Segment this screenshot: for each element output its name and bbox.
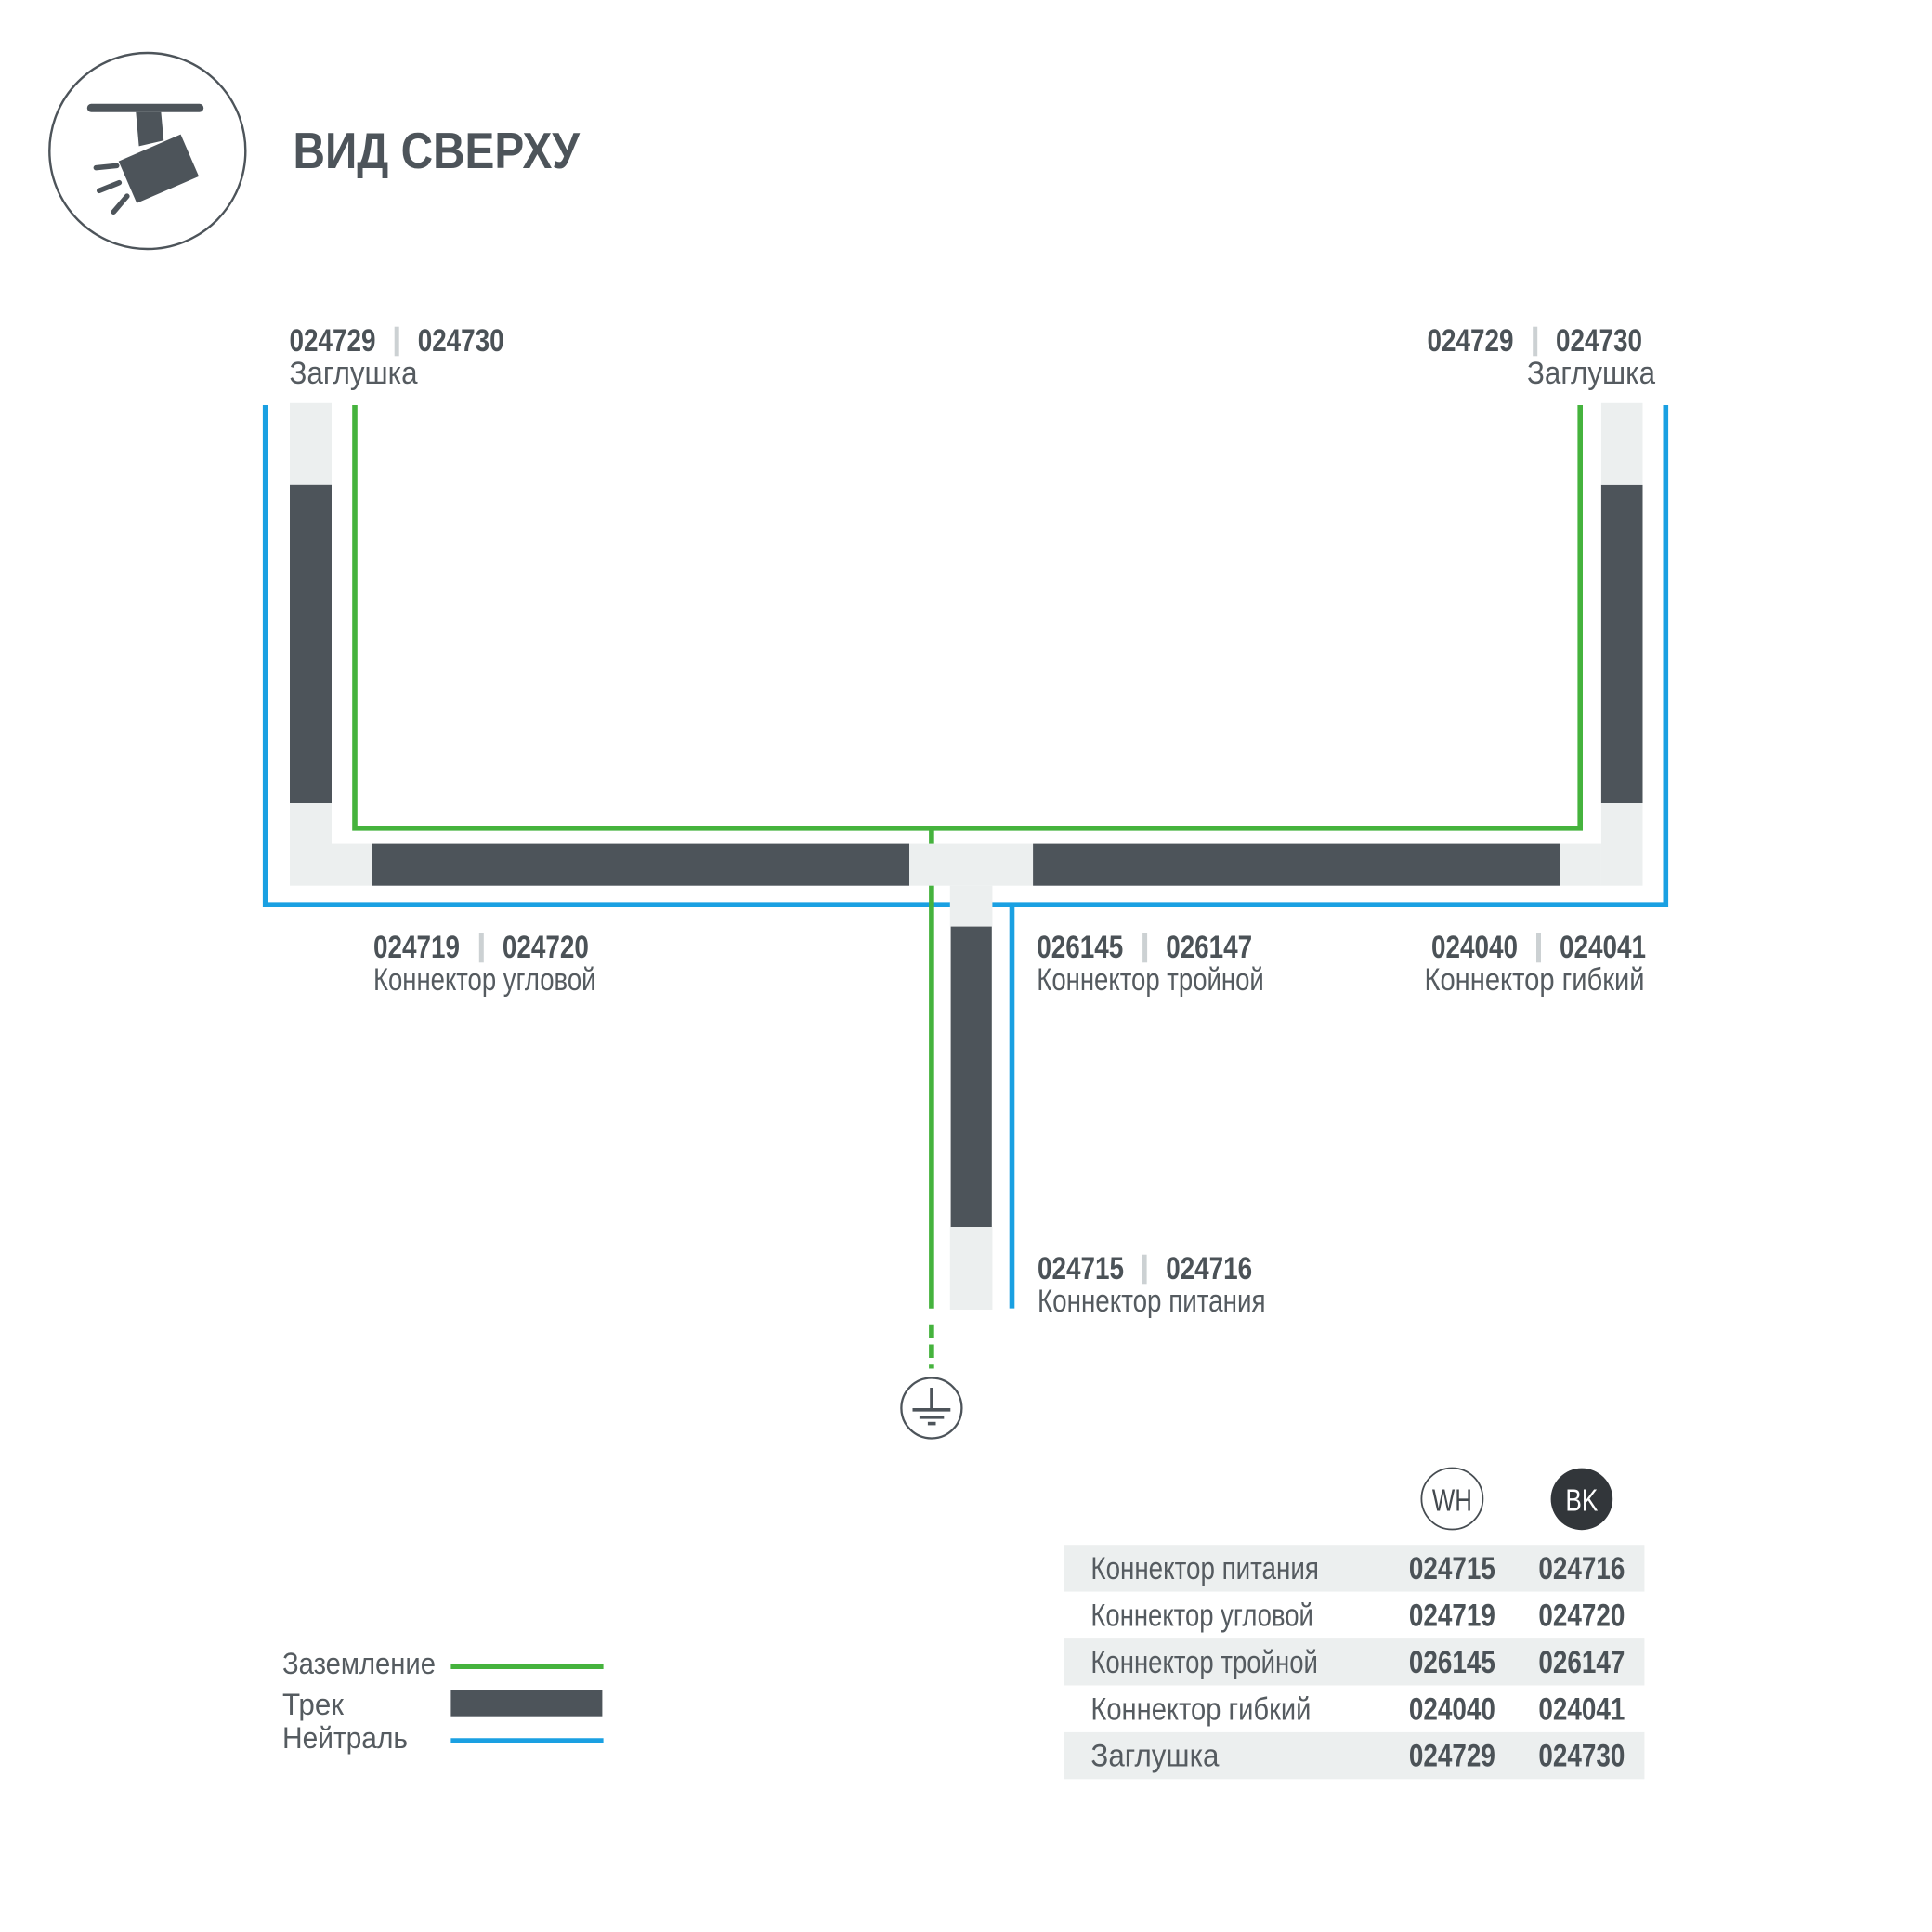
svg-text:Заглушка: Заглушка	[1527, 356, 1655, 391]
svg-text:Коннектор угловой: Коннектор угловой	[1090, 1599, 1313, 1634]
svg-text:024040: 024040	[1409, 1691, 1495, 1727]
svg-text:026147: 026147	[1166, 930, 1252, 965]
svg-text:026145: 026145	[1037, 930, 1123, 965]
svg-text:024715: 024715	[1038, 1251, 1124, 1286]
svg-text:ВИД СВЕРХУ: ВИД СВЕРХУ	[294, 122, 581, 179]
svg-text:024720: 024720	[1538, 1599, 1625, 1634]
svg-text:Нейтраль: Нейтраль	[282, 1721, 408, 1755]
svg-text:Коннектор тройной: Коннектор тройной	[1037, 962, 1264, 998]
svg-text:Заглушка: Заглушка	[1090, 1739, 1219, 1774]
svg-text:026145: 026145	[1409, 1645, 1495, 1680]
svg-text:024719: 024719	[373, 930, 460, 965]
svg-text:BK: BK	[1565, 1483, 1598, 1518]
svg-text:024729: 024729	[1409, 1739, 1495, 1774]
svg-text:Заземление: Заземление	[282, 1647, 436, 1680]
svg-text:024730: 024730	[418, 323, 504, 359]
svg-text:024715: 024715	[1409, 1551, 1495, 1586]
svg-text:Заглушка: Заглушка	[290, 356, 418, 391]
svg-text:026147: 026147	[1538, 1645, 1625, 1680]
svg-text:Коннектор тройной: Коннектор тройной	[1090, 1645, 1318, 1680]
svg-text:Коннектор гибкий: Коннектор гибкий	[1425, 962, 1645, 998]
svg-text:Коннектор питания: Коннектор питания	[1038, 1284, 1266, 1319]
svg-text:Коннектор питания: Коннектор питания	[1090, 1551, 1319, 1586]
svg-text:024719: 024719	[1409, 1599, 1495, 1634]
svg-text:024716: 024716	[1166, 1251, 1252, 1286]
svg-text:Коннектор гибкий: Коннектор гибкий	[1090, 1691, 1311, 1727]
svg-text:024730: 024730	[1538, 1739, 1625, 1774]
svg-text:024041: 024041	[1538, 1691, 1625, 1727]
svg-text:WH: WH	[1432, 1483, 1472, 1518]
svg-text:024716: 024716	[1538, 1551, 1625, 1586]
svg-text:Коннектор угловой: Коннектор угловой	[373, 962, 596, 998]
svg-text:024040: 024040	[1431, 930, 1518, 965]
svg-text:024729: 024729	[1428, 323, 1514, 359]
svg-text:024041: 024041	[1560, 930, 1646, 965]
svg-text:024720: 024720	[503, 930, 589, 965]
svg-text:Трек: Трек	[282, 1688, 345, 1721]
svg-text:024730: 024730	[1556, 323, 1642, 359]
svg-text:024729: 024729	[290, 323, 376, 359]
